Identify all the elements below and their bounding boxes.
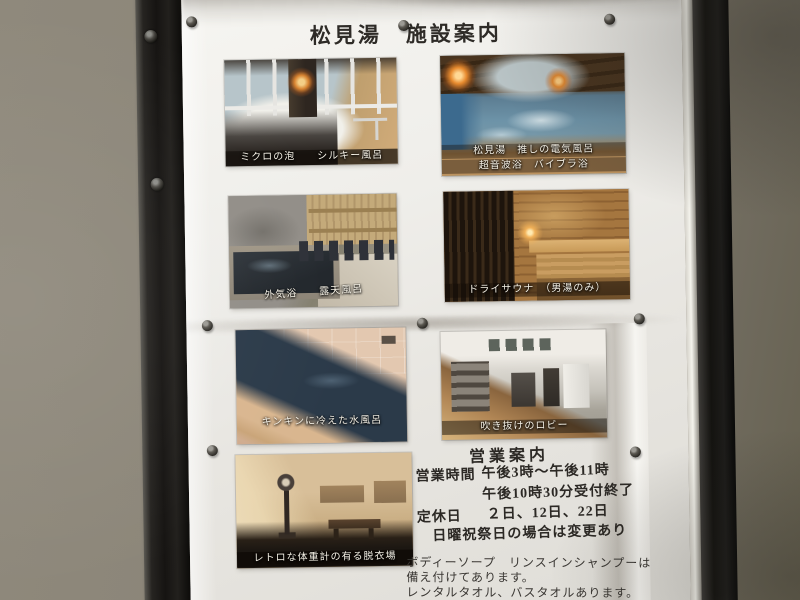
photo-electric-bath: 松見湯 推しの電気風呂 超音波浴 バイブラ浴 xyxy=(440,53,626,176)
photo-caption: 松見湯 推しの電気風呂 xyxy=(442,142,626,159)
photo-caption: 超音波浴 バイブラ浴 xyxy=(442,157,626,174)
amenities-line: 備え付けてあります。 xyxy=(406,570,651,586)
photo-caption: 吹き抜けのロビー xyxy=(442,418,607,435)
hours-value: 午後3時〜午後11時 xyxy=(481,459,610,483)
photo-dressing-room: レトロな体重計の有る脱衣場 xyxy=(235,452,413,568)
photo-caption: ドライサウナ （男湯のみ） xyxy=(445,281,630,298)
photo-dry-sauna: ドライサウナ （男湯のみ） xyxy=(443,189,630,302)
photo-caption: キンキンに冷えた水風呂 xyxy=(237,414,407,431)
amenities-line: ボディーソープ リンスインシャンプーは xyxy=(406,555,651,571)
amenities-line: レンタルタオル、バスタオルあります。 xyxy=(406,585,651,600)
frame-screw xyxy=(144,30,157,43)
photo-cold-bath: キンキンに冷えた水風呂 xyxy=(235,328,407,445)
photo-lobby: 吹き抜けのロビー xyxy=(441,329,608,440)
photo-silky-bath: ミクロの泡 シルキー風呂 xyxy=(224,58,398,167)
photo-caption: 外気浴 露天風呂 xyxy=(230,280,399,305)
closed-days-label: 定休日 xyxy=(417,505,463,526)
photo-caption: レトロな体重計の有る脱衣場 xyxy=(237,549,413,567)
push-pin xyxy=(186,16,197,27)
photo-caption: ミクロの泡 シルキー風呂 xyxy=(226,149,398,167)
push-pin xyxy=(630,446,641,457)
amenities-note: ボディーソープ リンスインシャンプーは 備え付けてあります。 レンタルタオル、バ… xyxy=(406,555,651,600)
push-pin xyxy=(604,14,615,25)
photo-open-air-bath: 外気浴 露天風呂 xyxy=(228,194,398,309)
push-pin xyxy=(417,318,428,329)
push-pin xyxy=(207,445,218,456)
bathhouse-notice-photo: 松見湯 施設案内 ミクロの泡 シルキー風呂 松見湯 推しの電気風呂 超音波浴 バ… xyxy=(0,0,800,600)
hours-label: 営業時間 xyxy=(415,464,476,486)
notice-board-assembly: 松見湯 施設案内 ミクロの泡 シルキー風呂 松見湯 推しの電気風呂 超音波浴 バ… xyxy=(135,0,745,600)
